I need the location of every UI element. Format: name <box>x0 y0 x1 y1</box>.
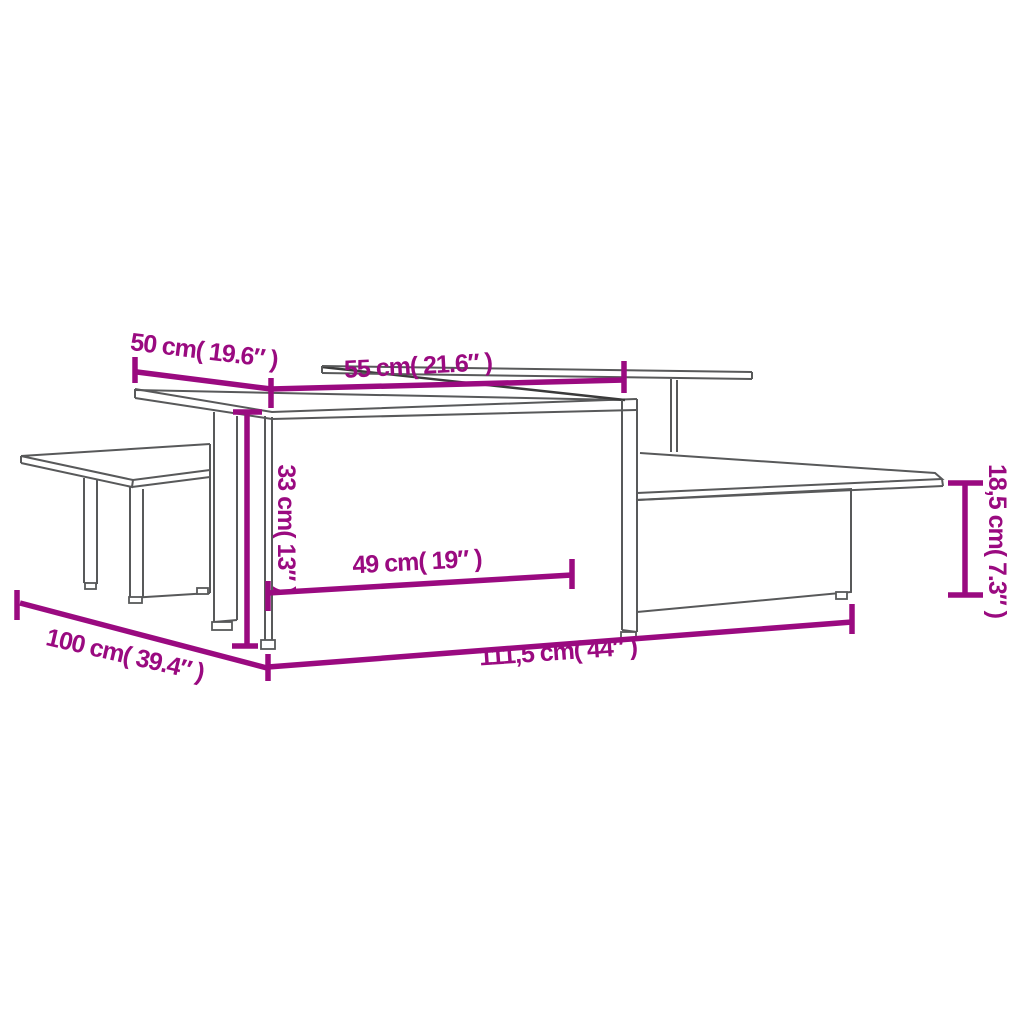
low-table-left-wing <box>21 444 210 603</box>
dim-18cm <box>948 483 983 595</box>
dim-label-18cm: 18,5 cm( 7.3″ ) <box>983 464 1011 619</box>
product-dimension-diagram: 50 cm( 19.6″ ) 55 cm( 21.6″ ) 33 cm( 13″… <box>0 0 1024 1024</box>
tall-table-right-panel <box>621 399 637 639</box>
low-table-right-wing <box>636 453 943 612</box>
dimension-diagram-canvas: 50 cm( 19.6″ ) 55 cm( 21.6″ ) 33 cm( 13″… <box>0 0 1024 1024</box>
foot <box>261 640 275 649</box>
tall-table-left-panel <box>212 412 237 630</box>
dim-label-49cm: 49 cm( 19″ ) <box>352 545 483 580</box>
foot <box>85 583 96 589</box>
dim-label-111cm: 111,5 cm( 44″ ) <box>478 632 638 671</box>
foot <box>197 588 208 594</box>
foot <box>212 622 232 630</box>
foot <box>129 597 142 603</box>
foot <box>836 592 847 599</box>
dim-label-55cm: 55 cm( 21.6″ ) <box>343 348 493 384</box>
dim-label-33cm: 33 cm( 13″ ) <box>272 464 300 594</box>
dim-label-50cm: 50 cm( 19.6″ ) <box>129 328 280 374</box>
furniture-drawing <box>21 366 943 649</box>
dimension-lines <box>17 357 983 681</box>
